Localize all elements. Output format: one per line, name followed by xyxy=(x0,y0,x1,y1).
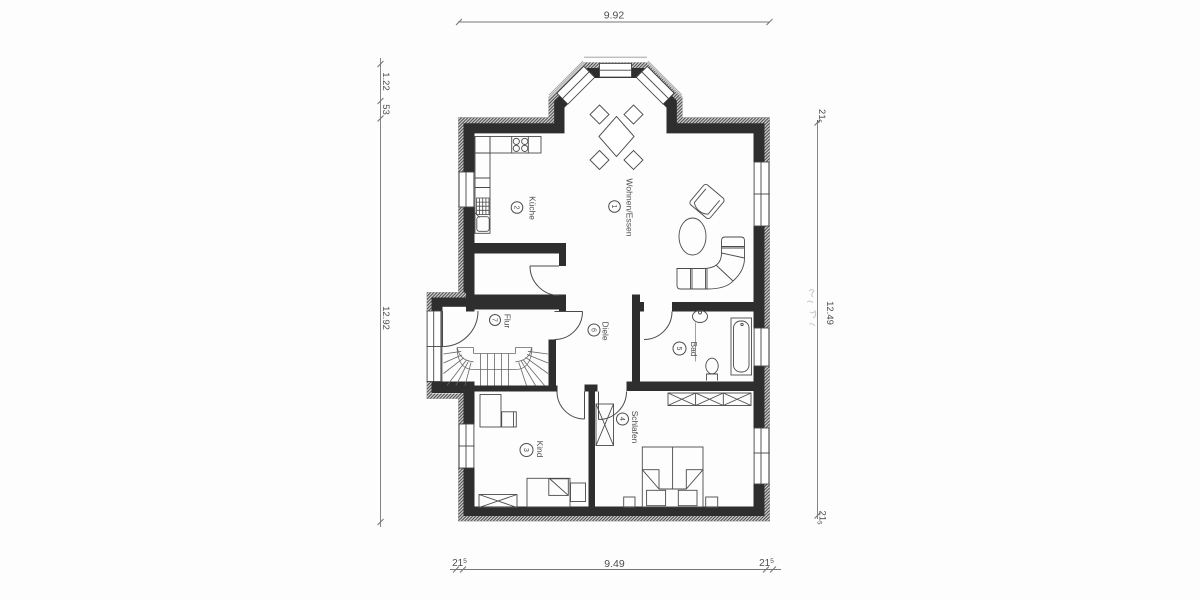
svg-text:4: 4 xyxy=(618,417,625,421)
svg-text:1.22: 1.22 xyxy=(380,72,391,91)
svg-text:12.49: 12.49 xyxy=(824,301,835,325)
svg-text:215: 215 xyxy=(816,511,828,526)
svg-text:Diele: Diele xyxy=(601,321,611,340)
svg-text:1: 1 xyxy=(610,205,617,209)
svg-text:53: 53 xyxy=(380,104,391,115)
svg-text:3: 3 xyxy=(522,448,529,452)
svg-text:Schlafen: Schlafen xyxy=(630,411,640,444)
svg-text:7: 7 xyxy=(491,318,498,322)
svg-text:Flur: Flur xyxy=(503,314,513,329)
svg-text:Küche: Küche xyxy=(528,196,538,220)
svg-text:Wohnen/Essen: Wohnen/Essen xyxy=(624,178,634,236)
svg-text:Kind: Kind xyxy=(535,441,545,458)
svg-text:9.49: 9.49 xyxy=(604,558,625,570)
svg-text:215: 215 xyxy=(759,558,774,569)
svg-text:6: 6 xyxy=(590,328,597,332)
svg-text:215: 215 xyxy=(815,109,827,124)
svg-text:2: 2 xyxy=(513,206,520,210)
svg-text:9.92: 9.92 xyxy=(604,10,625,22)
svg-text:Bad: Bad xyxy=(689,342,699,357)
svg-text:5: 5 xyxy=(675,347,682,351)
svg-text:12.92: 12.92 xyxy=(380,306,391,330)
